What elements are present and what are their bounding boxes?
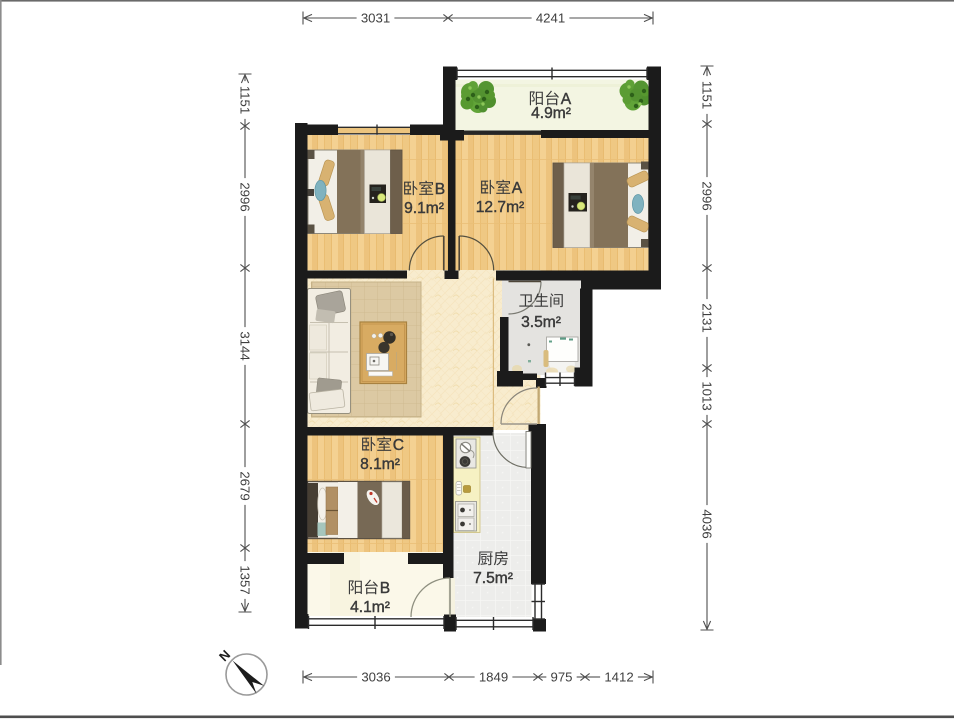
svg-text:12.7m²: 12.7m² [476, 199, 525, 216]
svg-text:2679: 2679 [237, 471, 252, 500]
svg-text:975: 975 [550, 670, 572, 685]
svg-text:B: B [380, 580, 390, 597]
svg-text:1412: 1412 [604, 670, 633, 685]
svg-text:1013: 1013 [699, 381, 714, 410]
svg-text:7.5m²: 7.5m² [473, 570, 513, 587]
svg-text:9.1m²: 9.1m² [404, 200, 444, 217]
svg-text:2131: 2131 [699, 303, 714, 332]
svg-text:3036: 3036 [361, 670, 390, 685]
svg-text:3144: 3144 [237, 331, 252, 360]
svg-text:4036: 4036 [699, 509, 714, 538]
svg-text:4241: 4241 [536, 11, 565, 26]
svg-text:A: A [512, 180, 523, 197]
svg-text:B: B [435, 181, 445, 198]
svg-text:4.9m²: 4.9m² [531, 105, 571, 122]
svg-text:C: C [393, 437, 404, 454]
svg-text:1151: 1151 [699, 81, 714, 109]
svg-text:3031: 3031 [361, 11, 390, 26]
svg-text:4.1m²: 4.1m² [350, 599, 390, 616]
svg-text:2996: 2996 [699, 181, 714, 210]
svg-text:3.5m²: 3.5m² [521, 314, 561, 331]
svg-text:1849: 1849 [479, 670, 508, 685]
svg-text:8.1m²: 8.1m² [360, 456, 400, 473]
svg-text:1357: 1357 [237, 565, 252, 594]
svg-text:1151: 1151 [237, 86, 252, 114]
svg-text:2996: 2996 [237, 182, 252, 211]
